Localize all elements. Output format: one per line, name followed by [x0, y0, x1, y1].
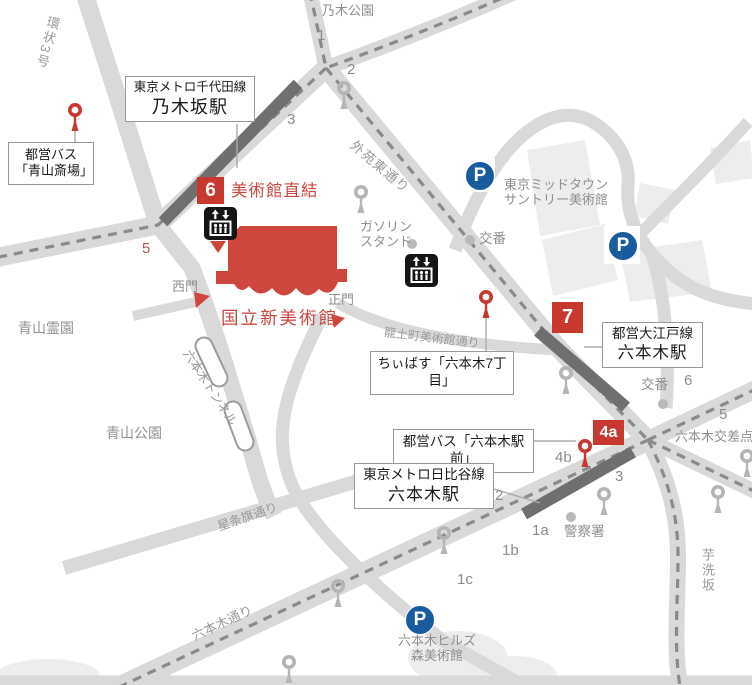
- bus-stop-icon-roppongi-ekimae: [577, 438, 593, 473]
- exit-hibiya-2: 2: [495, 487, 503, 504]
- bus-stop-icon-aoyama: [67, 102, 83, 137]
- nogizaka-station-name: 乃木坂駅: [130, 96, 250, 119]
- exit-nogizaka-5: 5: [142, 240, 150, 257]
- koban-center-label: 交番: [479, 231, 506, 247]
- exit-oedo-5: 5: [719, 406, 727, 423]
- midtown-line2: サントリー美術館: [504, 192, 608, 207]
- hills-line2: 森美術館: [411, 648, 463, 663]
- bus-stop-icon: [353, 184, 369, 219]
- bus-stop-icon: [739, 448, 752, 483]
- bus-stop-icon: [710, 484, 726, 519]
- gas-station-label: ガソリン スタンド: [360, 220, 412, 250]
- aoyama-bus-line2: 「青山斎場」: [15, 163, 93, 178]
- bus-stop-icon: [336, 80, 352, 115]
- parking-icon: P: [465, 161, 495, 191]
- west-gate-label: 西門: [172, 280, 198, 295]
- bus-stop-icon: [558, 365, 574, 400]
- hills-line1: 六本木ヒルズ: [398, 633, 476, 648]
- exit-badge-7: 7: [552, 302, 583, 333]
- exit-hibiya-1c: 1c: [457, 571, 473, 588]
- hibiya-line-name: 東京メトロ日比谷線: [359, 467, 489, 484]
- exit-oedo-4b: 4b: [555, 449, 572, 466]
- oedo-station-box: 都営大江戸線 六本木駅: [602, 322, 703, 368]
- hills-label: 六本木ヒルズ 森美術館: [395, 634, 479, 664]
- oedo-station-name: 六本木駅: [607, 343, 698, 364]
- exit-hibiya-1b: 1b: [502, 542, 519, 559]
- midtown-line1: 東京ミッドタウン: [504, 177, 608, 192]
- midtown-label: 東京ミッドタウン サントリー美術館: [500, 178, 612, 208]
- nogizaka-station-box: 東京メトロ千代田線 乃木坂駅: [125, 76, 255, 122]
- main-gate-label: 正門: [328, 293, 354, 308]
- exit-hibiya-1a: 1a: [532, 522, 549, 539]
- chiibus-stop-box: ちぃばす「六本木7丁目」: [370, 351, 514, 395]
- roppongi-crossing-label: 六本木交差点: [675, 430, 752, 445]
- nogi-park-label: 乃木公園: [322, 4, 374, 19]
- aoyama-park-label: 青山公園: [106, 425, 162, 441]
- exit-badge-4a: 4a: [593, 420, 624, 445]
- exit-nogizaka-2: 2: [347, 61, 355, 78]
- museum-name-label: 国立新美術館: [221, 308, 338, 328]
- aoyama-bus-line1: 都営バス: [25, 147, 77, 162]
- exit-nogizaka-3: 3: [287, 111, 295, 128]
- bus-stop-icon: [596, 486, 612, 521]
- bus-stop-icon-chiibus: [478, 289, 494, 324]
- elevator-icon: [405, 254, 438, 292]
- oedo-line-name: 都営大江戸線: [607, 326, 698, 343]
- museum-direct-label: 美術館直結: [231, 182, 319, 201]
- gas-line1: ガソリン: [360, 219, 412, 234]
- exit-oedo-6: 6: [684, 372, 692, 389]
- aoyama-cemetery-label: 青山霊園: [18, 320, 74, 336]
- parking-icon: P: [405, 605, 435, 635]
- elevator-icon: [204, 207, 237, 245]
- nogizaka-line-name: 東京メトロ千代田線: [130, 80, 250, 96]
- imoarai-zaka-road-label: 芋洗坂: [699, 548, 714, 593]
- gas-line2: スタンド: [360, 234, 412, 249]
- parking-icon: P: [608, 231, 638, 261]
- aoyama-bus-box: 都営バス 「青山斎場」: [8, 142, 94, 185]
- exit-oedo-3: 3: [615, 468, 623, 485]
- bus-stop-icon: [281, 654, 297, 685]
- bus-stop-icon: [330, 578, 346, 613]
- exit-badge-6: 6: [197, 177, 224, 204]
- access-map: 乃木公園 環状3号 青山霊園 青山公園 外苑東通り 龍土町美術館通り 六本木トン…: [0, 0, 752, 685]
- koban-east-label: 交番: [641, 377, 668, 393]
- exit-nogizaka-1: 1: [317, 27, 325, 44]
- hibiya-station-name: 六本木駅: [359, 484, 489, 505]
- police-station-label: 警察署: [564, 524, 605, 540]
- bus-stop-icon: [436, 525, 452, 560]
- hibiya-station-box: 東京メトロ日比谷線 六本木駅: [354, 463, 494, 509]
